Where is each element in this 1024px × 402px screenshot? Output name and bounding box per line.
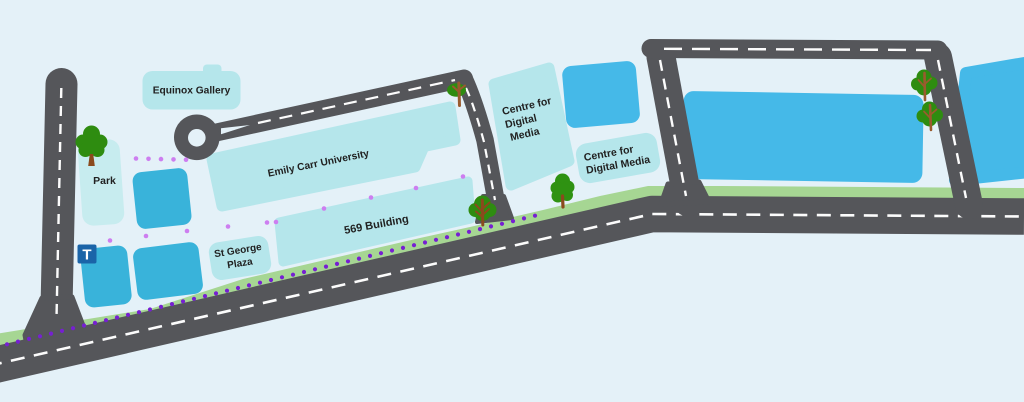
svg-text:T: T — [82, 247, 91, 264]
svg-text:Park: Park — [93, 175, 116, 187]
svg-text:Equinox Gallery: Equinox Gallery — [153, 86, 231, 97]
